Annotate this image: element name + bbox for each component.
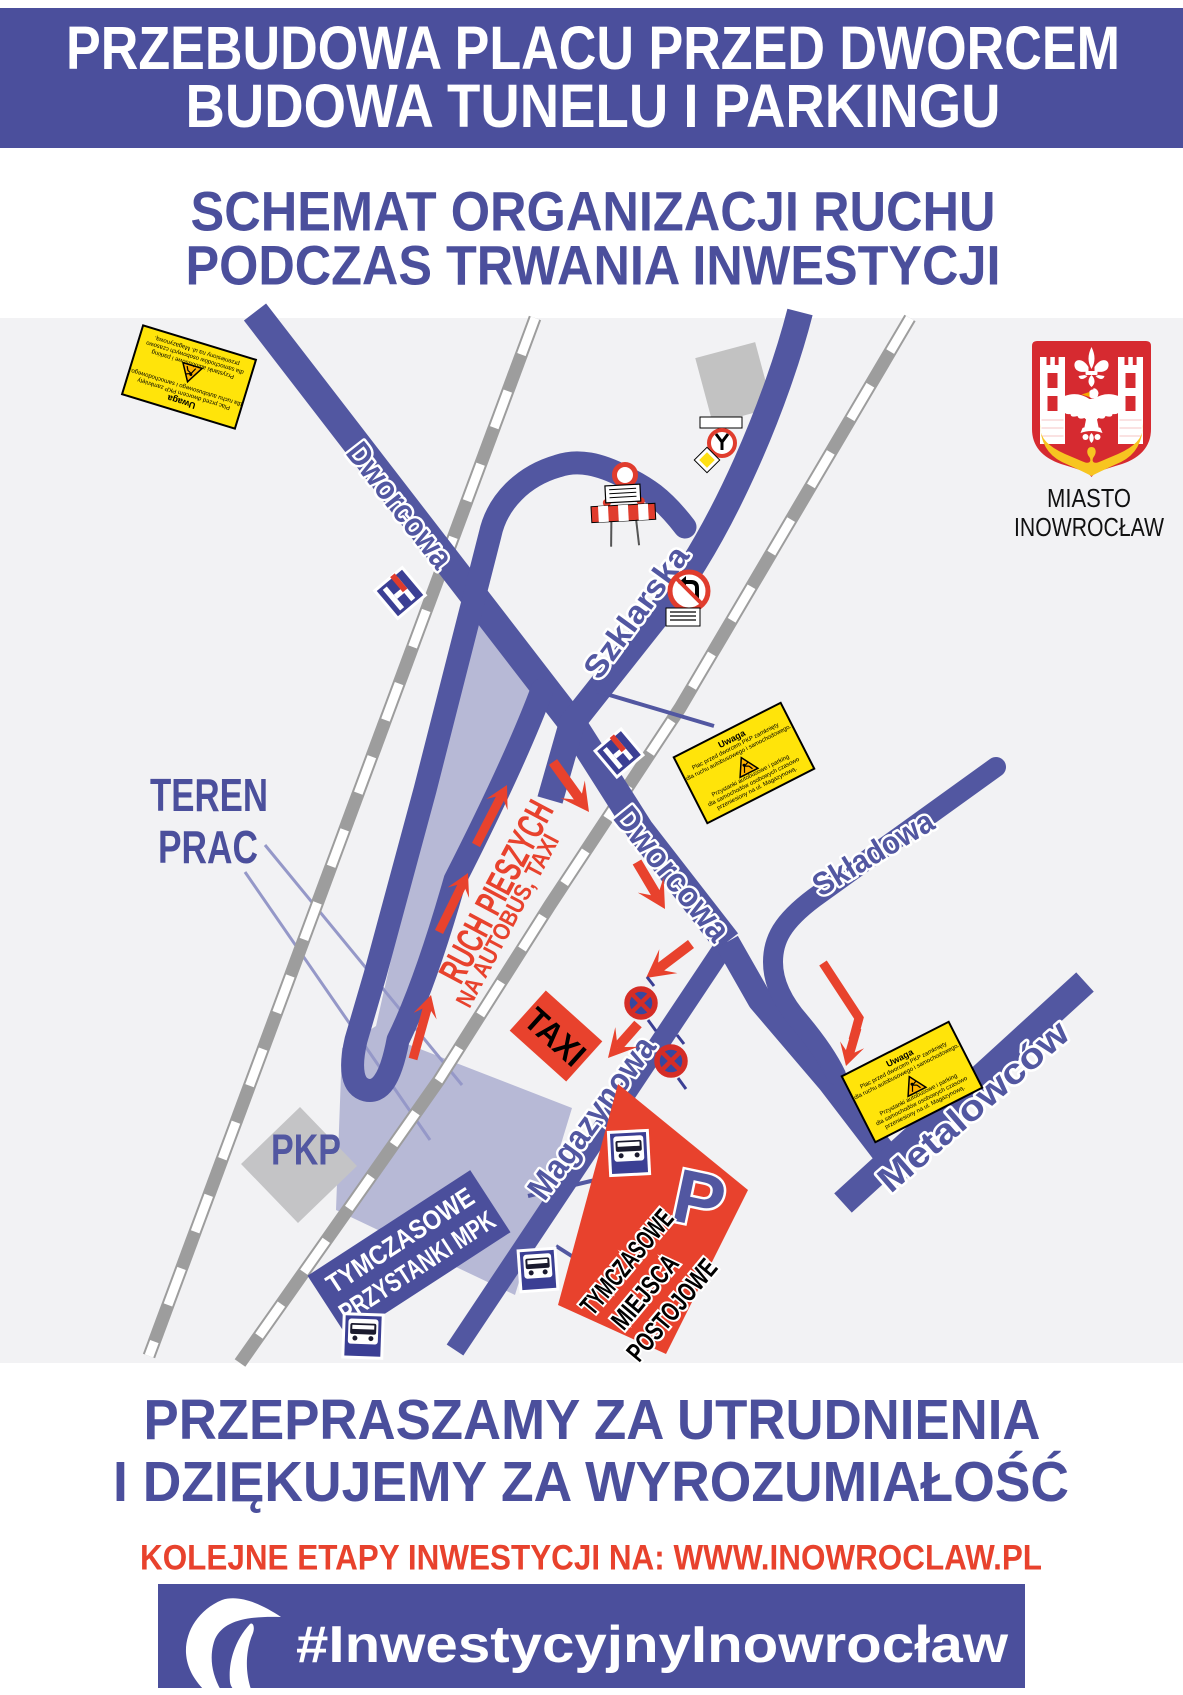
svg-text:PRAC: PRAC <box>158 821 258 873</box>
svg-text:PRZEPRASZAMY ZA UTRUDNIENIA: PRZEPRASZAMY ZA UTRUDNIENIA <box>144 1388 1041 1452</box>
svg-text:TEREN: TEREN <box>150 769 268 821</box>
svg-text:PKP: PKP <box>271 1126 341 1175</box>
svg-text:BUDOWA TUNELU I PARKINGU: BUDOWA TUNELU I PARKINGU <box>186 72 1001 140</box>
svg-text:I DZIĘKUJEMY ZA WYROZUMIAŁOŚĆ: I DZIĘKUJEMY ZA WYROZUMIAŁOŚĆ <box>113 1450 1069 1514</box>
svg-text:INOWROCŁAW: INOWROCŁAW <box>1014 512 1164 542</box>
svg-text:KOLEJNE ETAPY INWESTYCJI NA: W: KOLEJNE ETAPY INWESTYCJI NA: WWW.INOWROC… <box>140 1539 1042 1578</box>
svg-text:#InwestycyjnyInowrocław: #InwestycyjnyInowrocław <box>296 1616 1009 1674</box>
svg-text:MIASTO: MIASTO <box>1047 483 1131 513</box>
svg-text:PODCZAS TRWANIA INWESTYCJI: PODCZAS TRWANIA INWESTYCJI <box>186 234 1001 297</box>
